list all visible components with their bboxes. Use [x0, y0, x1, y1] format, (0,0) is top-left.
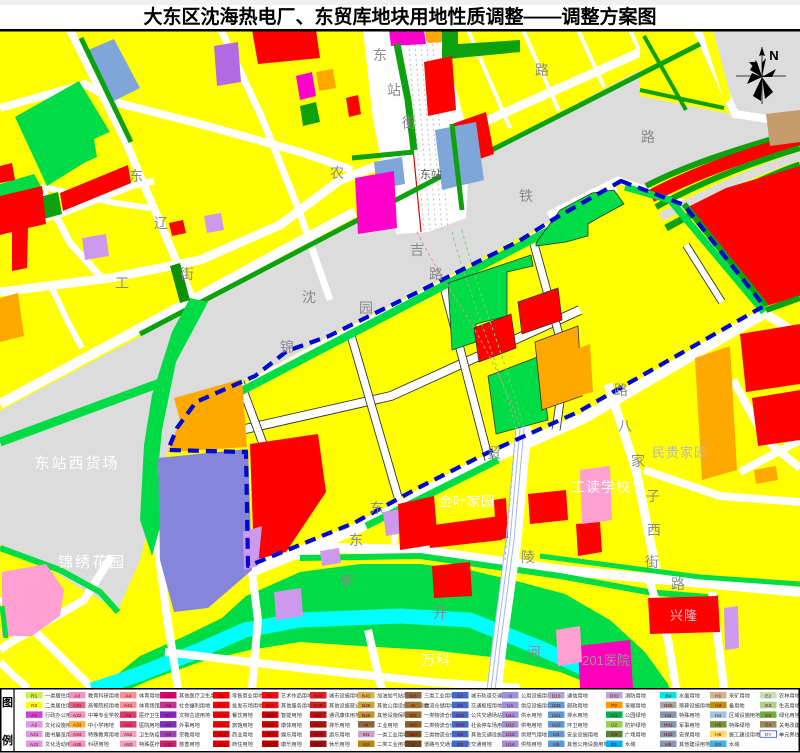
- svg-text:R2: R2: [31, 703, 37, 709]
- svg-text:DY: DY: [765, 732, 772, 738]
- svg-text:H5: H5: [715, 723, 721, 729]
- svg-text:大东区沈海热电厂、东贸库地块用地性质调整——调整方案图: 大东区沈海热电厂、东贸库地块用地性质调整——调整方案图: [143, 5, 656, 28]
- svg-text:A41: A41: [124, 703, 133, 709]
- svg-text:游乐用地: 游乐用地: [329, 731, 350, 739]
- svg-text:S42: S42: [456, 723, 465, 729]
- svg-text:A31: A31: [73, 703, 82, 709]
- svg-text:H42: H42: [664, 732, 673, 738]
- svg-text:B1: B1: [218, 693, 224, 699]
- svg-text:A53: A53: [124, 742, 133, 748]
- svg-text:军事用地: 军事用地: [679, 721, 700, 729]
- svg-text:其他服务用地: 其他服务用地: [281, 701, 312, 709]
- svg-text:A1: A1: [31, 713, 37, 719]
- svg-text:公用设施用地: 公用设施用地: [521, 692, 552, 700]
- svg-text:201医院: 201医院: [582, 653, 630, 668]
- svg-text:A10: A10: [164, 742, 173, 748]
- svg-text:A2: A2: [31, 723, 37, 729]
- svg-text:宗教用地: 宗教用地: [179, 731, 200, 739]
- svg-text:B48: B48: [362, 703, 371, 709]
- svg-text:一类工业用地: 一类工业用地: [377, 731, 408, 739]
- svg-text:东: 东: [370, 500, 384, 516]
- svg-text:河: 河: [527, 644, 541, 660]
- svg-text:采暖用地: 采暖用地: [625, 701, 646, 709]
- svg-text:B29: B29: [266, 723, 275, 729]
- svg-text:B41: B41: [362, 693, 371, 699]
- svg-text:殡葬设施用地: 殡葬设施用地: [679, 701, 710, 709]
- svg-text:东站西货场: 东站西货场: [34, 455, 119, 472]
- svg-text:A34: A34: [73, 732, 82, 738]
- svg-text:环卫用地: 环卫用地: [567, 721, 588, 729]
- svg-text:辽: 辽: [154, 215, 168, 231]
- svg-text:排水用地: 排水用地: [567, 711, 588, 719]
- svg-text:U1: U1: [507, 703, 513, 709]
- svg-text:其他建设用地: 其他建设用地: [679, 740, 710, 748]
- svg-text:S1: S1: [457, 703, 463, 709]
- svg-text:零售商业用地: 零售商业用地: [232, 692, 263, 700]
- svg-text:A4: A4: [125, 693, 131, 699]
- svg-text:生态用地: 生态用地: [779, 701, 800, 709]
- svg-text:U12: U12: [506, 723, 515, 729]
- svg-text:P2: P2: [611, 703, 617, 709]
- svg-text:B51: B51: [314, 723, 323, 729]
- svg-text:东: 东: [373, 47, 387, 63]
- svg-text:商业用地: 商业用地: [232, 731, 253, 739]
- svg-text:N: N: [769, 48, 778, 63]
- svg-text:B53: B53: [314, 742, 323, 748]
- svg-text:社会福利用地: 社会福利用地: [179, 701, 210, 709]
- svg-text:W1: W1: [410, 713, 418, 719]
- svg-text:U14: U14: [506, 742, 515, 748]
- svg-text:B14: B14: [217, 732, 226, 738]
- svg-text:供燃气用地: 供燃气用地: [521, 731, 547, 739]
- svg-text:公园绿地: 公园绿地: [625, 711, 646, 719]
- svg-text:H25: H25: [664, 703, 673, 709]
- svg-text:A9: A9: [165, 732, 171, 738]
- svg-text:U9: U9: [553, 742, 559, 748]
- svg-text:餐饮用地: 餐饮用地: [232, 711, 253, 719]
- svg-text:新: 新: [340, 573, 354, 589]
- svg-text:供水用地: 供水用地: [521, 711, 542, 719]
- svg-text:H41: H41: [664, 723, 673, 729]
- svg-text:贸: 贸: [487, 445, 501, 461]
- svg-text:通信用地: 通信用地: [567, 692, 588, 700]
- svg-text:B12: B12: [217, 713, 226, 719]
- svg-text:东站: 东站: [420, 167, 442, 181]
- svg-text:B5: B5: [315, 713, 321, 719]
- svg-text:S2: S2: [457, 693, 463, 699]
- svg-text:三类工业用地: 三类工业用地: [424, 692, 455, 700]
- svg-text:金叶家园: 金叶家园: [439, 494, 495, 509]
- svg-text:B3: B3: [267, 732, 273, 738]
- svg-text:农林用地: 农林用地: [779, 692, 800, 700]
- svg-text:A22: A22: [30, 742, 39, 748]
- svg-text:S41: S41: [456, 713, 465, 719]
- svg-text:东: 东: [349, 532, 363, 548]
- svg-text:子: 子: [646, 488, 660, 504]
- svg-text:科研用地: 科研用地: [88, 740, 109, 748]
- svg-text:安全设施用地: 安全设施用地: [567, 731, 598, 739]
- svg-text:U13: U13: [506, 732, 515, 738]
- svg-text:陵: 陵: [521, 549, 535, 565]
- svg-text:备用地: 备用地: [729, 701, 745, 709]
- svg-text:康体用地: 康体用地: [281, 721, 302, 729]
- svg-text:B52: B52: [314, 732, 323, 738]
- svg-text:通讯康体用地: 通讯康体用地: [329, 711, 360, 719]
- svg-text:S9: S9: [457, 732, 463, 738]
- svg-text:社会停车场用地: 社会停车场用地: [471, 721, 507, 729]
- svg-text:M3: M3: [410, 693, 417, 699]
- svg-text:D13: D13: [552, 693, 561, 699]
- svg-text:A35: A35: [73, 742, 82, 748]
- svg-text:A59: A59: [164, 693, 173, 699]
- svg-text:街: 街: [402, 115, 416, 131]
- svg-text:康乐用地: 康乐用地: [281, 740, 302, 748]
- svg-text:单元界线: 单元界线: [779, 731, 800, 739]
- svg-text:开: 开: [433, 605, 447, 621]
- svg-text:特殊绿地: 特殊绿地: [729, 721, 750, 729]
- svg-text:A32: A32: [73, 713, 82, 719]
- svg-text:邮政用地: 邮政用地: [567, 701, 588, 709]
- svg-text:A33: A33: [73, 723, 82, 729]
- svg-text:绿化用地: 绿化用地: [779, 711, 800, 719]
- svg-text:B15: B15: [217, 742, 226, 748]
- svg-text:路: 路: [671, 576, 685, 592]
- svg-text:E4: E4: [765, 723, 771, 729]
- svg-text:路: 路: [641, 129, 655, 145]
- svg-text:H1: H1: [715, 693, 721, 699]
- svg-text:U22: U22: [552, 723, 561, 729]
- svg-text:H2: H2: [665, 713, 671, 719]
- svg-text:二类工业用地: 二类工业用地: [377, 740, 408, 748]
- svg-text:路: 路: [429, 266, 443, 282]
- svg-text:关电改建设用地: 关电改建设用地: [779, 721, 800, 729]
- svg-text:H6: H6: [715, 732, 721, 738]
- svg-text:娱乐用地: 娱乐用地: [281, 731, 302, 739]
- svg-text:园: 园: [359, 300, 373, 316]
- svg-text:路: 路: [535, 62, 549, 78]
- svg-text:H9: H9: [665, 742, 671, 748]
- svg-text:家: 家: [631, 453, 645, 469]
- svg-text:H3: H3: [715, 703, 721, 709]
- svg-text:农: 农: [330, 165, 344, 181]
- svg-text:教育科研用地: 教育科研用地: [88, 692, 119, 700]
- svg-text:兴隆: 兴隆: [670, 608, 698, 623]
- svg-text:B49: B49: [362, 713, 371, 719]
- svg-text:U21: U21: [552, 713, 561, 719]
- svg-text:八: 八: [618, 418, 632, 434]
- svg-text:W: W: [411, 703, 416, 709]
- svg-text:消防用地: 消防用地: [625, 692, 646, 700]
- svg-text:物流仓储用地: 物流仓储用地: [424, 701, 455, 709]
- svg-text:沈: 沈: [302, 289, 316, 305]
- svg-text:E1: E1: [611, 742, 617, 748]
- svg-text:东: 东: [129, 168, 143, 184]
- svg-text:A21: A21: [30, 732, 39, 738]
- svg-text:E2: E2: [765, 693, 771, 699]
- svg-text:工读学校: 工读学校: [571, 479, 631, 495]
- svg-text:B49: B49: [314, 703, 323, 709]
- svg-text:M: M: [364, 723, 368, 729]
- svg-text:G3: G3: [611, 732, 618, 738]
- svg-text:E3: E3: [765, 703, 771, 709]
- svg-text:U32: U32: [552, 703, 561, 709]
- svg-text:安保用地: 安保用地: [679, 731, 700, 739]
- svg-text:水域: 水域: [729, 740, 739, 748]
- svg-text:G1: G1: [611, 713, 618, 719]
- svg-text:供应设施用地: 供应设施用地: [521, 701, 552, 709]
- svg-text:A51: A51: [124, 723, 133, 729]
- svg-text:B4: B4: [665, 693, 671, 699]
- svg-text:西: 西: [647, 522, 661, 538]
- svg-text:U: U: [508, 693, 512, 699]
- svg-text:A6: A6: [165, 703, 171, 709]
- svg-text:B2: B2: [267, 693, 273, 699]
- svg-text:站: 站: [387, 82, 401, 98]
- svg-text:M1: M1: [363, 732, 370, 738]
- svg-text:例: 例: [2, 733, 13, 747]
- svg-text:吉: 吉: [410, 242, 424, 258]
- svg-text:街: 街: [180, 266, 194, 282]
- svg-text:B31: B31: [266, 742, 275, 748]
- svg-text:图: 图: [2, 696, 13, 709]
- svg-text:W2: W2: [410, 723, 418, 729]
- svg-text:防护绿地: 防护绿地: [625, 721, 646, 729]
- svg-text:艺术作品用地: 艺术作品用地: [281, 692, 312, 700]
- svg-text:R1: R1: [31, 693, 37, 699]
- svg-text:A7: A7: [165, 713, 171, 719]
- svg-text:W3: W3: [410, 732, 418, 738]
- svg-text:E9: E9: [765, 713, 771, 719]
- svg-text:B13: B13: [217, 723, 226, 729]
- svg-text:M2: M2: [363, 742, 370, 748]
- svg-text:供电用地: 供电用地: [521, 721, 542, 729]
- svg-text:A3: A3: [74, 693, 80, 699]
- svg-text:施工建设用地: 施工建设用地: [729, 731, 760, 739]
- svg-text:高等院校用地: 高等院校用地: [88, 701, 119, 709]
- svg-text:外事用地: 外事用地: [179, 721, 200, 729]
- svg-text:D31: D31: [610, 693, 619, 699]
- svg-text:U3: U3: [553, 732, 559, 738]
- svg-text:文物古迹用地: 文物古迹用地: [179, 711, 210, 719]
- svg-text:体育用地: 体育用地: [139, 692, 160, 700]
- svg-text:A52: A52: [124, 732, 133, 738]
- svg-text:旅馆用地: 旅馆用地: [232, 721, 253, 729]
- svg-text:医院用地: 医院用地: [139, 721, 160, 729]
- svg-text:批发市场用地: 批发市场用地: [232, 701, 263, 709]
- svg-text:水域: 水域: [625, 740, 635, 748]
- svg-text:街: 街: [645, 554, 659, 570]
- svg-text:民贵家园: 民贵家园: [652, 445, 708, 460]
- svg-text:锦: 锦: [280, 339, 294, 355]
- svg-text:工: 工: [115, 275, 129, 291]
- svg-text:H4: H4: [715, 713, 721, 719]
- svg-text:A5: A5: [125, 713, 131, 719]
- svg-text:A8: A8: [165, 723, 171, 729]
- svg-text:万科: 万科: [421, 652, 451, 668]
- svg-text:U11: U11: [506, 713, 515, 719]
- svg-text:工业用地: 工业用地: [377, 721, 398, 729]
- svg-text:智能用地: 智能用地: [281, 711, 302, 719]
- svg-text:其他公用设施用地: 其他公用设施用地: [567, 740, 609, 748]
- svg-text:铁: 铁: [519, 188, 533, 204]
- svg-text:商住用地: 商住用地: [232, 740, 253, 748]
- svg-text:广场用地: 广场用地: [625, 731, 646, 739]
- svg-text:采矿用地: 采矿用地: [729, 692, 750, 700]
- svg-text:交通用地: 交通用地: [471, 740, 492, 748]
- svg-text:B22: B22: [266, 713, 275, 719]
- svg-text:B21: B21: [266, 703, 275, 709]
- svg-text:城市设施用地: 城市设施用地: [329, 692, 360, 700]
- svg-text:休乐用地: 休乐用地: [329, 740, 350, 748]
- svg-text:E0: E0: [715, 742, 721, 748]
- svg-text:锦绣花园: 锦绣花园: [58, 554, 126, 571]
- svg-text:S3: S3: [457, 742, 463, 748]
- svg-text:S: S: [412, 742, 415, 748]
- svg-text:特殊教育用地: 特殊教育用地: [88, 731, 119, 739]
- svg-text:交通枢纽用地: 交通枢纽用地: [471, 701, 502, 709]
- svg-text:慈善用地: 慈善用地: [179, 740, 200, 748]
- svg-text:区域设施用地: 区域设施用地: [729, 711, 760, 719]
- svg-text:水面用地: 水面用地: [679, 692, 700, 700]
- svg-text:排乐用地: 排乐用地: [329, 721, 350, 729]
- svg-text:G2: G2: [611, 723, 618, 729]
- svg-text:B11: B11: [217, 703, 226, 709]
- svg-text:特殊用地: 特殊用地: [679, 711, 700, 719]
- svg-text:中小学用地: 中小学用地: [88, 721, 114, 729]
- svg-text:B40: B40: [314, 693, 323, 699]
- svg-text:路: 路: [614, 382, 628, 398]
- svg-text:供热用地: 供热用地: [521, 740, 542, 748]
